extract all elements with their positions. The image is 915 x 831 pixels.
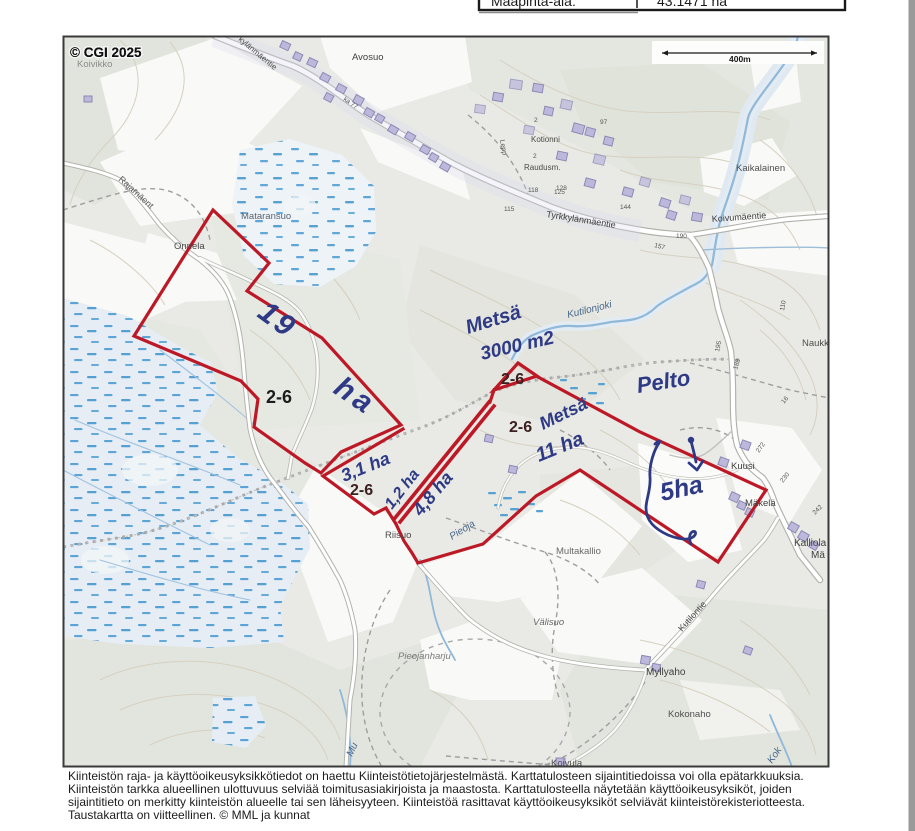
svg-text:© CGI 2025: © CGI 2025 [70,45,142,60]
svg-text:2-6: 2-6 [266,387,292,407]
svg-text:Kuusi: Kuusi [731,461,755,472]
svg-text:400m: 400m [729,54,751,64]
svg-text:Maapinta-ala:: Maapinta-ala: [491,0,576,9]
svg-text:Onnela: Onnela [174,241,205,252]
svg-text:43.1471 ha: 43.1471 ha [657,0,727,9]
svg-text:2-6: 2-6 [501,371,524,388]
svg-text:2: 2 [533,153,537,160]
svg-text:Kotionni: Kotionni [531,135,560,144]
svg-text:Pieojanharju: Pieojanharju [398,651,452,662]
svg-text:Kiinteistön tarkka alueellinen: Kiinteistön tarkka alueellinen ulottuvuu… [68,782,792,796]
svg-text:115: 115 [504,206,515,213]
svg-text:Kaikalainen: Kaikalainen [736,163,785,174]
svg-text:Mä: Mä [811,550,825,561]
svg-text:Välisuo: Välisuo [533,617,564,628]
svg-text:97: 97 [600,119,608,126]
svg-text:Naukki: Naukki [802,338,831,349]
svg-text:2: 2 [534,117,538,124]
svg-text:2-6: 2-6 [509,419,532,436]
svg-text:Taustakartta on viitteellinen.: Taustakartta on viitteellinen. © MML ja … [68,808,311,822]
svg-text:2-6: 2-6 [350,482,373,499]
svg-text:sijaintitieto on merkitty kiin: sijaintitieto on merkitty kiinteistön al… [68,795,805,809]
svg-text:Multakallio: Multakallio [556,546,601,557]
svg-text:Raudusm.: Raudusm. [524,163,560,172]
svg-text:Kalliola: Kalliola [794,538,827,549]
svg-text:Mäkelä: Mäkelä [745,498,776,509]
svg-text:Avosuo: Avosuo [352,52,384,63]
svg-text:Koivikko: Koivikko [77,59,112,70]
svg-text:144: 144 [620,204,631,211]
svg-text:118: 118 [528,187,539,194]
svg-text:Kiinteistön raja- ja käyttöoik: Kiinteistön raja- ja käyttöoikeusyksikkö… [68,769,804,783]
svg-text:128: 128 [556,185,567,192]
svg-text:Myllyaho: Myllyaho [646,667,686,678]
svg-text:Kokonaho: Kokonaho [668,709,711,720]
svg-text:Riisuo: Riisuo [385,530,411,541]
svg-text:190: 190 [676,233,687,240]
svg-text:Mataransuo: Mataransuo [241,211,291,222]
